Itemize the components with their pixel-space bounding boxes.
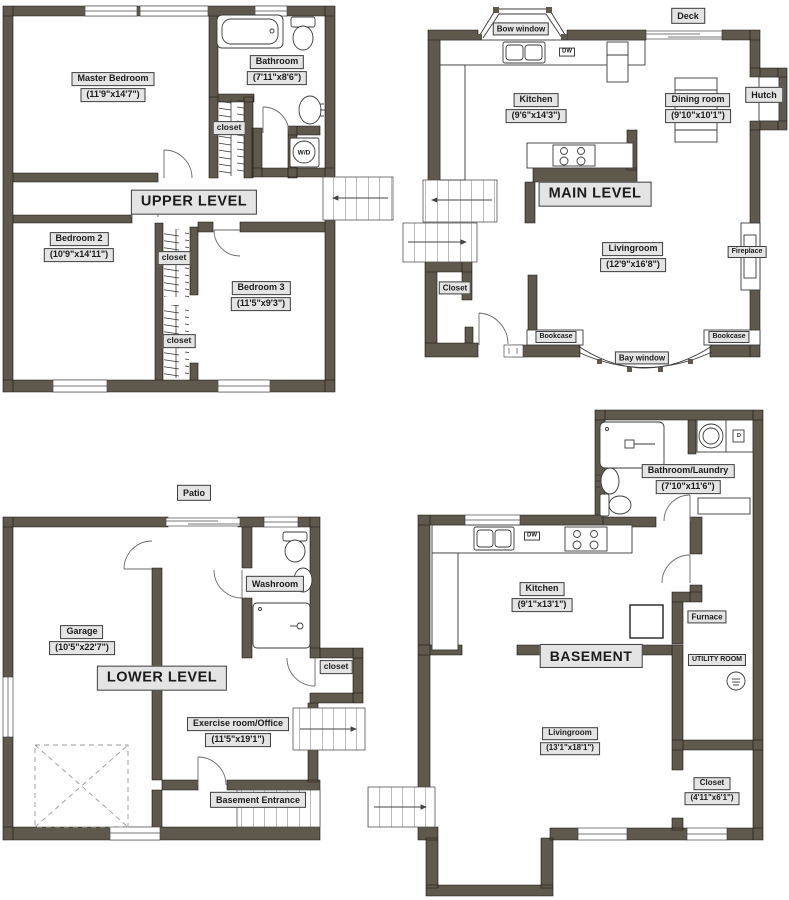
label-bathroom-upper: Bathroom (7'11"x8'6") [247, 55, 307, 85]
floorplan-canvas [0, 0, 789, 900]
label-basement-title: BASEMENT [540, 644, 643, 668]
label-closet-mid: closet [158, 251, 191, 265]
label-master-bedroom: Master Bedroom (11'9"x14'7") [71, 72, 154, 102]
label-bow-window: Bow window [493, 22, 549, 35]
label-closet-master: closet [213, 121, 246, 135]
label-bathroom-laundry: Bathroom/Laundry (7'10"x11'6") [642, 464, 735, 494]
label-dishwasher-main: DW [559, 48, 575, 57]
label-furnace: Furnace [687, 610, 726, 623]
label-bookcase-left: Bookcase [535, 331, 576, 343]
floorplan-page: UPPER LEVEL Master Bedroom (11'9"x14'7")… [0, 0, 789, 900]
toilet-icon [600, 494, 631, 516]
label-kitchen-basement: Kitchen (9'1"x13'1") [512, 582, 573, 612]
label-hutch: Hutch [745, 87, 783, 103]
sink-icon [474, 527, 514, 550]
label-basement-entrance: Basement Entrance [210, 792, 306, 808]
label-lower-level-title: LOWER LEVEL [97, 666, 227, 691]
label-bay-window: Bay window [615, 351, 669, 364]
label-main-level-title: MAIN LEVEL [539, 182, 652, 207]
label-dishwasher-basement: DW [524, 532, 540, 541]
label-closet-lower-level: closet [320, 660, 353, 674]
label-livingroom-main: Livingroom (12'9"x16'8") [600, 242, 666, 272]
shower-icon [253, 603, 310, 648]
stairs [323, 177, 393, 220]
label-bookcase-right: Bookcase [708, 331, 749, 343]
label-exercise-room: Exercise room/Office (11'5"x19'1") [187, 717, 289, 747]
label-patio: Patio [177, 485, 211, 501]
shower-icon [600, 422, 664, 468]
label-upper-level-title: UPPER LEVEL [131, 190, 257, 215]
stairs [368, 787, 435, 827]
label-fireplace: Fireplace [728, 246, 767, 258]
label-washer-dryer: W/D [298, 149, 311, 156]
label-dining-room: Dining room (9'10"x10'1") [665, 93, 731, 123]
label-garage: Garage (10'5"x22'7") [49, 625, 115, 655]
label-dryer: D [737, 433, 741, 439]
label-kitchen-main: Kitchen (9'6"x14'3") [506, 93, 567, 123]
label-washroom: Washroom [246, 576, 304, 592]
label-bedroom3: Bedroom 3 (11'5"x9'3") [231, 281, 291, 311]
furnace-unit-icon [630, 605, 663, 638]
label-bedroom2: Bedroom 2 (10'9"x14'11") [44, 232, 114, 262]
label-closet-basement: Closet (4'11"x6'1") [685, 777, 740, 805]
fridge-icon [607, 42, 628, 82]
sink-icon [503, 42, 545, 63]
label-deck: Deck [671, 8, 705, 24]
label-livingroom-basement: Livingroom (13'1"x18'1") [540, 727, 600, 755]
washer-icon [697, 420, 753, 452]
label-closet-lower: closet [163, 334, 196, 348]
label-closet-main: Closet [439, 281, 471, 294]
bathtub-icon [217, 15, 283, 48]
deck-door [646, 31, 722, 39]
toilet-icon [283, 532, 307, 562]
toilet-icon [291, 17, 315, 50]
label-utility-room: UTILITY ROOM [688, 654, 746, 666]
